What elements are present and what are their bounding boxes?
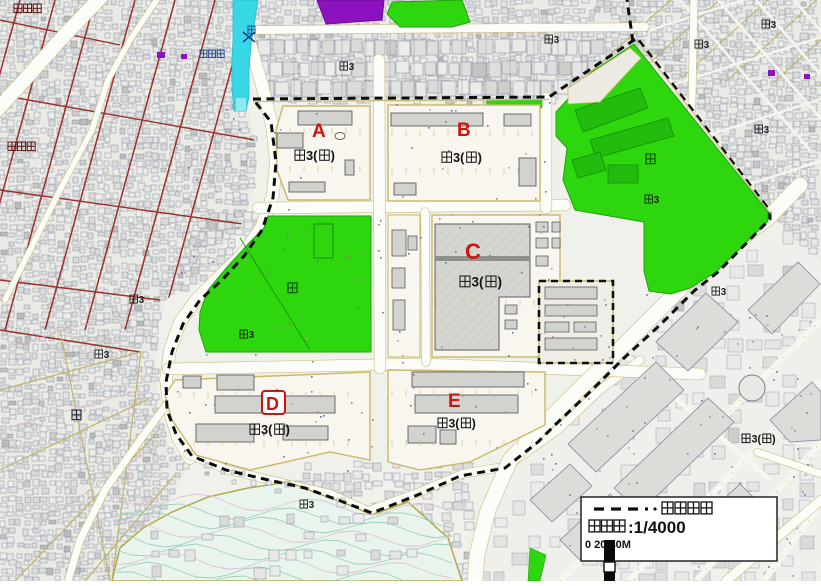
svg-text:E: E xyxy=(448,391,461,412)
svg-text:3: 3 xyxy=(654,195,660,206)
svg-text:3: 3 xyxy=(721,287,727,298)
svg-text:C: C xyxy=(465,239,481,264)
svg-text:): ) xyxy=(478,150,482,165)
svg-text::1/4000: :1/4000 xyxy=(628,518,686,537)
svg-text:A: A xyxy=(312,121,326,142)
svg-text:3: 3 xyxy=(309,500,315,511)
svg-text:): ) xyxy=(472,416,476,430)
svg-text:3(: 3( xyxy=(449,416,461,430)
svg-text:B: B xyxy=(457,120,471,141)
svg-text:): ) xyxy=(286,422,290,437)
svg-text:3: 3 xyxy=(349,62,355,73)
svg-text:3: 3 xyxy=(139,295,145,306)
svg-text:3(: 3( xyxy=(306,148,318,163)
svg-text:3: 3 xyxy=(764,125,770,136)
svg-text:D: D xyxy=(266,394,279,414)
svg-text:3(: 3( xyxy=(752,433,762,445)
svg-text:3: 3 xyxy=(249,330,255,341)
svg-text:3: 3 xyxy=(104,350,110,361)
svg-text:3: 3 xyxy=(771,20,777,31)
svg-text:): ) xyxy=(331,148,335,163)
svg-text:3(: 3( xyxy=(472,275,485,290)
svg-text:): ) xyxy=(498,275,503,290)
svg-text:): ) xyxy=(772,433,776,445)
svg-text:3: 3 xyxy=(704,40,710,51)
svg-text:3: 3 xyxy=(554,35,560,46)
svg-text:3(: 3( xyxy=(261,422,273,437)
svg-text:3(: 3( xyxy=(453,150,465,165)
